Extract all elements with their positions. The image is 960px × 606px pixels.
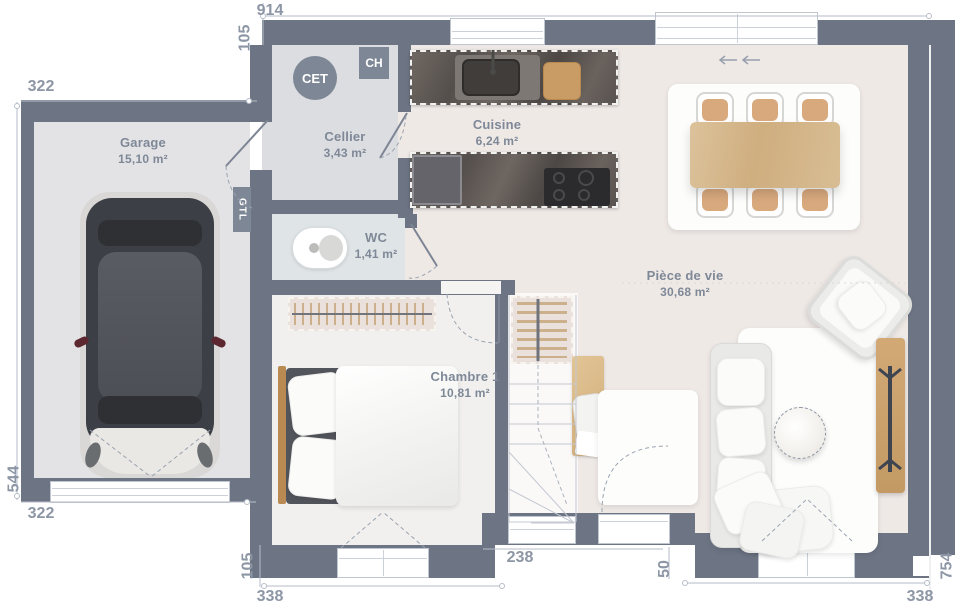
window-stairs-south: [508, 516, 576, 544]
wall-corner-notch: [913, 556, 929, 576]
stove-burner-3: [553, 189, 565, 201]
room-area: 3,43 m²: [295, 146, 395, 162]
chambre-door-opening: [441, 281, 501, 294]
wall-cellier-wc: [250, 200, 413, 214]
dim-top-offset: 105: [233, 20, 257, 56]
tv-sideboard: [876, 338, 905, 493]
dim-bottom-middle-width: 238: [498, 549, 542, 567]
wall-divider-main: [250, 170, 272, 578]
wall-wc-east-stub: [405, 214, 417, 228]
electrical-panel-gtl: GTL: [233, 187, 251, 232]
room-label-cellier: Cellier 3,43 m²: [295, 129, 395, 161]
wardrobe-chambre: [288, 297, 436, 331]
room-name: Garage: [83, 135, 203, 152]
room-label-garage: Garage 15,10 m²: [83, 135, 203, 167]
room-label-piece-de-vie: Pièce de vie 30,68 m²: [625, 268, 745, 300]
dim-bottom-chambre-width: 338: [248, 588, 292, 606]
car-hood: [90, 428, 210, 474]
toilet-button: [309, 243, 319, 253]
stove-burner-4: [578, 189, 590, 201]
wall-garage-top: [21, 100, 272, 122]
stove-burner-1: [553, 172, 565, 184]
dim-top-width: 914: [248, 2, 292, 20]
wall-stair-west: [495, 295, 508, 520]
window-chambre-south: [337, 548, 429, 578]
room-label-wc: WC 1,41 m²: [326, 230, 426, 262]
room-area: 30,68 m²: [625, 285, 745, 301]
electrical-panel-label: GTL: [237, 198, 248, 221]
room-name: Cellier: [295, 129, 395, 146]
fridge: [412, 155, 462, 205]
car-windshield: [98, 396, 202, 424]
room-name: Pièce de vie: [625, 268, 745, 285]
floor-plan: CET CH GTL: [0, 0, 960, 606]
car-rear-window: [98, 220, 202, 246]
dim-entrance-width: 50: [653, 552, 677, 586]
room-area: 6,24 m²: [447, 134, 547, 150]
room-name: Chambre 1: [405, 369, 525, 386]
wardrobe-stairs: [511, 296, 573, 364]
room-name: WC: [326, 230, 426, 247]
dim-garage-width-top: 322: [19, 78, 63, 96]
dim-left-height: 544: [2, 461, 26, 497]
water-heater-label: CET: [302, 71, 328, 86]
wall-top: [262, 20, 955, 45]
kitchen-sink-basin: [462, 59, 520, 96]
boiler-ch: CH: [359, 47, 389, 79]
water-heater-cet: CET: [293, 56, 337, 100]
coffee-table: [774, 407, 826, 459]
window-living-top: [655, 12, 818, 45]
entrance-rug: [598, 390, 698, 505]
car-roof: [98, 252, 202, 402]
window-kitchen-top: [450, 18, 545, 45]
room-label-cuisine: Cuisine 6,24 m²: [447, 117, 547, 149]
cutting-board: [543, 62, 581, 100]
room-name: Cuisine: [447, 117, 547, 134]
room-area: 10,81 m²: [405, 386, 525, 402]
room-area: 15,10 m²: [83, 152, 203, 168]
room-label-chambre1: Chambre 1 10,81 m²: [405, 369, 525, 401]
bed-headboard: [278, 366, 286, 504]
garage-door: [50, 481, 230, 503]
entrance-door: [598, 514, 670, 544]
room-area: 1,41 m²: [326, 247, 426, 263]
boiler-label: CH: [365, 56, 382, 70]
dim-bottom-offset: 105: [236, 548, 260, 584]
wall-garage-left: [21, 100, 34, 500]
stove-burner-2: [578, 170, 594, 186]
dim-right-height: 754: [935, 548, 959, 584]
dim-bottom-living-width: 338: [898, 588, 942, 606]
dining-table: [690, 122, 840, 188]
wall-right: [908, 20, 955, 555]
dim-garage-width-bottom: 322: [19, 505, 63, 523]
